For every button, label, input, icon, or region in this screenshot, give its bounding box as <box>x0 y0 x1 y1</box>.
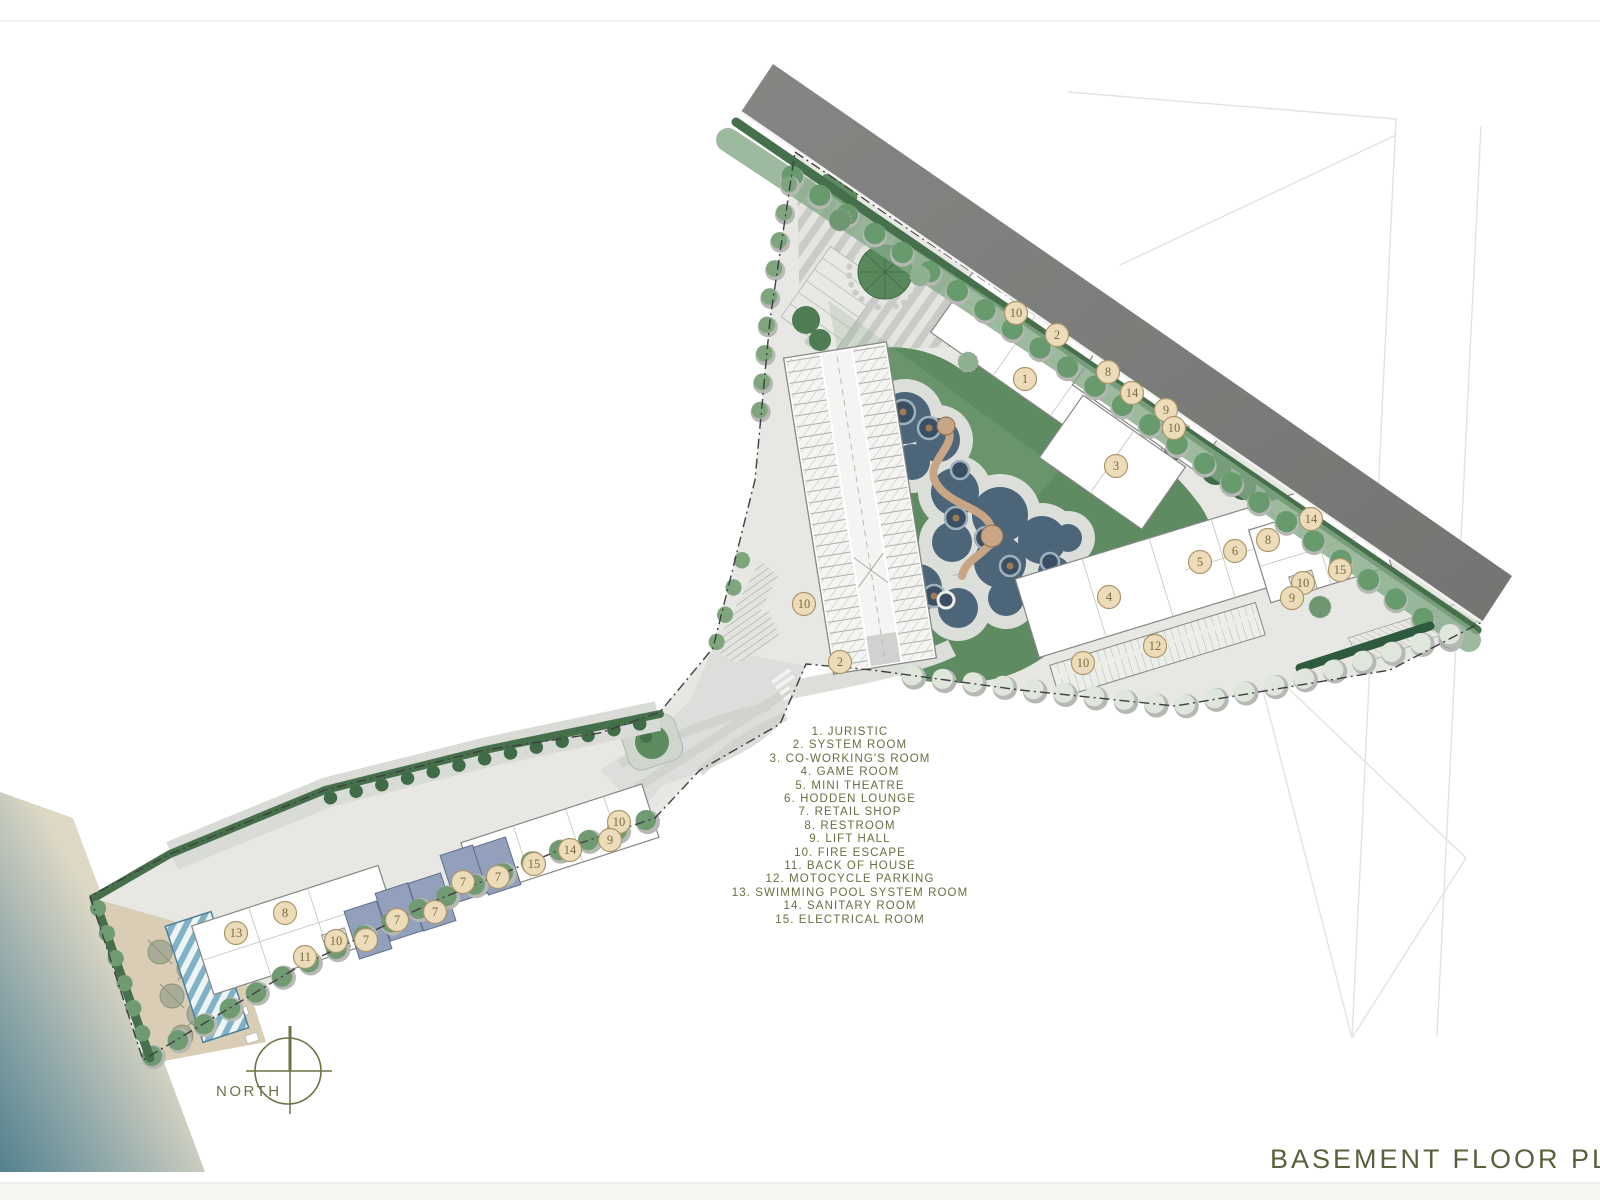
svg-text:8: 8 <box>1265 533 1271 547</box>
legend-item: 8. RESTROOM <box>600 820 1100 833</box>
legend-item: 10. FIRE ESCAPE <box>600 847 1100 860</box>
room-marker: 10 <box>1005 302 1028 325</box>
room-marker: 6 <box>1224 540 1247 563</box>
svg-text:14: 14 <box>1126 386 1139 400</box>
room-marker: 11 <box>294 946 317 969</box>
room-marker: 10 <box>793 593 816 616</box>
room-marker: 3 <box>1105 455 1128 478</box>
room-marker: 10 <box>1072 652 1095 675</box>
plan-title: BASEMENT FLOOR PLAN <box>1270 1144 1600 1175</box>
svg-text:2: 2 <box>837 655 843 669</box>
room-marker: 13 <box>225 922 248 945</box>
legend-item: 12. MOTOCYCLE PARKING <box>600 873 1100 886</box>
legend-item: 2. SYSTEM ROOM <box>600 739 1100 752</box>
room-marker: 7 <box>424 901 447 924</box>
svg-text:4: 4 <box>1106 590 1113 604</box>
svg-text:12: 12 <box>1149 639 1162 653</box>
svg-text:9: 9 <box>1163 403 1169 417</box>
svg-text:6: 6 <box>1232 544 1238 558</box>
legend-item: 5. MINI THEATRE <box>600 780 1100 793</box>
legend-item: 14. SANITARY ROOM <box>600 900 1100 913</box>
room-marker: 2 <box>1046 324 1069 347</box>
room-marker: 1 <box>1014 368 1037 391</box>
svg-text:14: 14 <box>564 843 577 857</box>
svg-text:13: 13 <box>230 926 243 940</box>
room-marker: 7 <box>487 866 510 889</box>
svg-text:15: 15 <box>1334 563 1347 577</box>
svg-text:9: 9 <box>1289 591 1295 605</box>
svg-text:7: 7 <box>460 875 466 889</box>
svg-text:11: 11 <box>299 950 311 964</box>
legend-item: 7. RETAIL SHOP <box>600 806 1100 819</box>
legend: 1. JURISTIC2. SYSTEM ROOM3. CO-WORKING'S… <box>600 726 1100 927</box>
room-marker: 14 <box>559 839 582 862</box>
site-plan-canvas: 1021814910310214865151094121010914157777… <box>0 0 1600 1200</box>
svg-text:7: 7 <box>394 913 400 927</box>
room-marker: 9 <box>1281 587 1304 610</box>
room-marker: 8 <box>1097 361 1120 384</box>
svg-text:8: 8 <box>282 906 288 920</box>
svg-text:7: 7 <box>363 933 369 947</box>
svg-text:1: 1 <box>1022 372 1028 386</box>
room-marker: 10 <box>1163 417 1186 440</box>
site-plan-drawing: 1021814910310214865151094121010914157777… <box>0 0 1600 1200</box>
svg-text:10: 10 <box>798 597 811 611</box>
legend-item: 15. ELECTRICAL ROOM <box>600 914 1100 927</box>
legend-item: 13. SWIMMING POOL SYSTEM ROOM <box>600 887 1100 900</box>
svg-text:10: 10 <box>330 934 343 948</box>
svg-text:5: 5 <box>1197 555 1203 569</box>
room-marker: 8 <box>274 902 297 925</box>
svg-text:8: 8 <box>1105 365 1111 379</box>
room-marker: 8 <box>1257 529 1280 552</box>
svg-text:7: 7 <box>495 870 501 884</box>
room-marker: 2 <box>829 651 852 674</box>
north-label: NORTH <box>216 1083 282 1100</box>
svg-text:10: 10 <box>1077 656 1090 670</box>
svg-text:3: 3 <box>1113 459 1119 473</box>
legend-item: 9. LIFT HALL <box>600 833 1100 846</box>
svg-text:7: 7 <box>432 905 438 919</box>
room-marker: 14 <box>1121 382 1144 405</box>
legend-item: 1. JURISTIC <box>600 726 1100 739</box>
legend-item: 3. CO-WORKING'S ROOM <box>600 753 1100 766</box>
legend-item: 6. HODDEN LOUNGE <box>600 793 1100 806</box>
room-marker: 7 <box>386 909 409 932</box>
room-marker: 12 <box>1144 635 1167 658</box>
svg-text:2: 2 <box>1054 328 1060 342</box>
room-marker: 4 <box>1098 586 1121 609</box>
room-marker: 15 <box>523 853 546 876</box>
room-marker: 5 <box>1189 551 1212 574</box>
svg-text:10: 10 <box>1010 306 1023 320</box>
svg-text:14: 14 <box>1305 512 1318 526</box>
svg-text:10: 10 <box>1168 421 1181 435</box>
room-marker: 14 <box>1300 508 1323 531</box>
svg-text:15: 15 <box>528 857 541 871</box>
room-marker: 10 <box>325 930 348 953</box>
room-marker: 15 <box>1329 559 1352 582</box>
room-marker: 7 <box>452 871 475 894</box>
legend-item: 4. GAME ROOM <box>600 766 1100 779</box>
legend-item: 11. BACK OF HOUSE <box>600 860 1100 873</box>
room-marker: 7 <box>355 929 378 952</box>
